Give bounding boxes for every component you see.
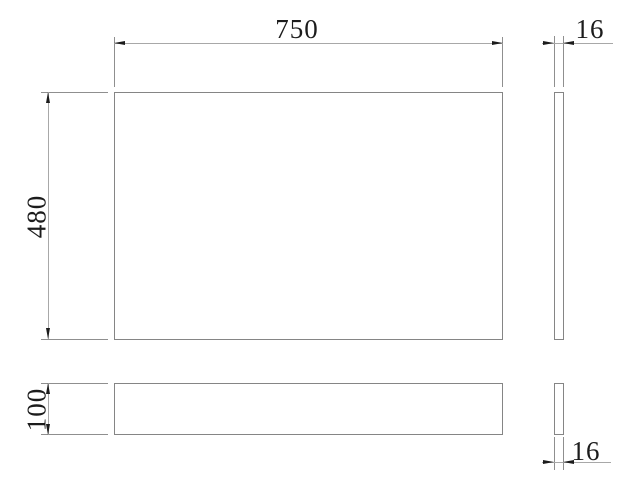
- arrowhead-right-icon: [492, 41, 503, 45]
- front-panel-outline: [114, 92, 503, 340]
- arrowhead-left-icon: [114, 41, 125, 45]
- plinth-height-label: 100: [24, 375, 51, 445]
- extension-line: [41, 434, 108, 435]
- arrowhead-right-icon: [543, 460, 554, 464]
- arrowhead-up-icon: [46, 92, 50, 103]
- extension-line: [41, 92, 108, 93]
- plinth-front-outline: [114, 383, 503, 435]
- panel-side-view-outline: [554, 92, 564, 340]
- arrowhead-right-icon: [543, 41, 554, 45]
- arrowhead-down-icon: [46, 328, 50, 339]
- technical-drawing-canvas: 750 480 16 100 16: [0, 0, 643, 488]
- extension-line: [41, 339, 108, 340]
- panel-thickness-label: 16: [566, 16, 614, 43]
- plinth-thickness-label: 16: [562, 438, 610, 465]
- panel-width-label: 750: [267, 16, 327, 43]
- extension-line: [41, 383, 108, 384]
- panel-height-label: 480: [24, 182, 51, 252]
- extension-line: [554, 437, 555, 470]
- plinth-side-view-outline: [554, 383, 564, 435]
